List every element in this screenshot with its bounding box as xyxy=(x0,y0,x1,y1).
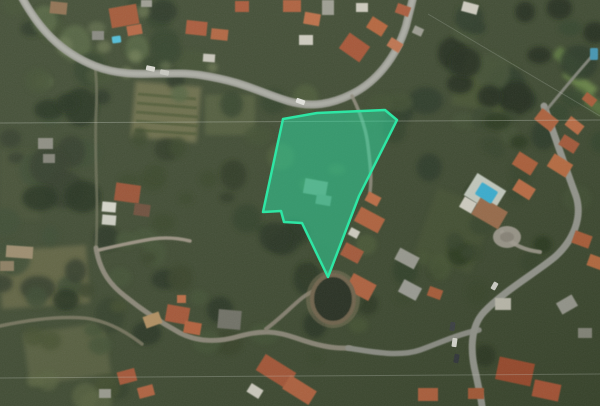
satellite-map-view[interactable] xyxy=(0,0,600,406)
satellite-imagery xyxy=(0,0,600,406)
